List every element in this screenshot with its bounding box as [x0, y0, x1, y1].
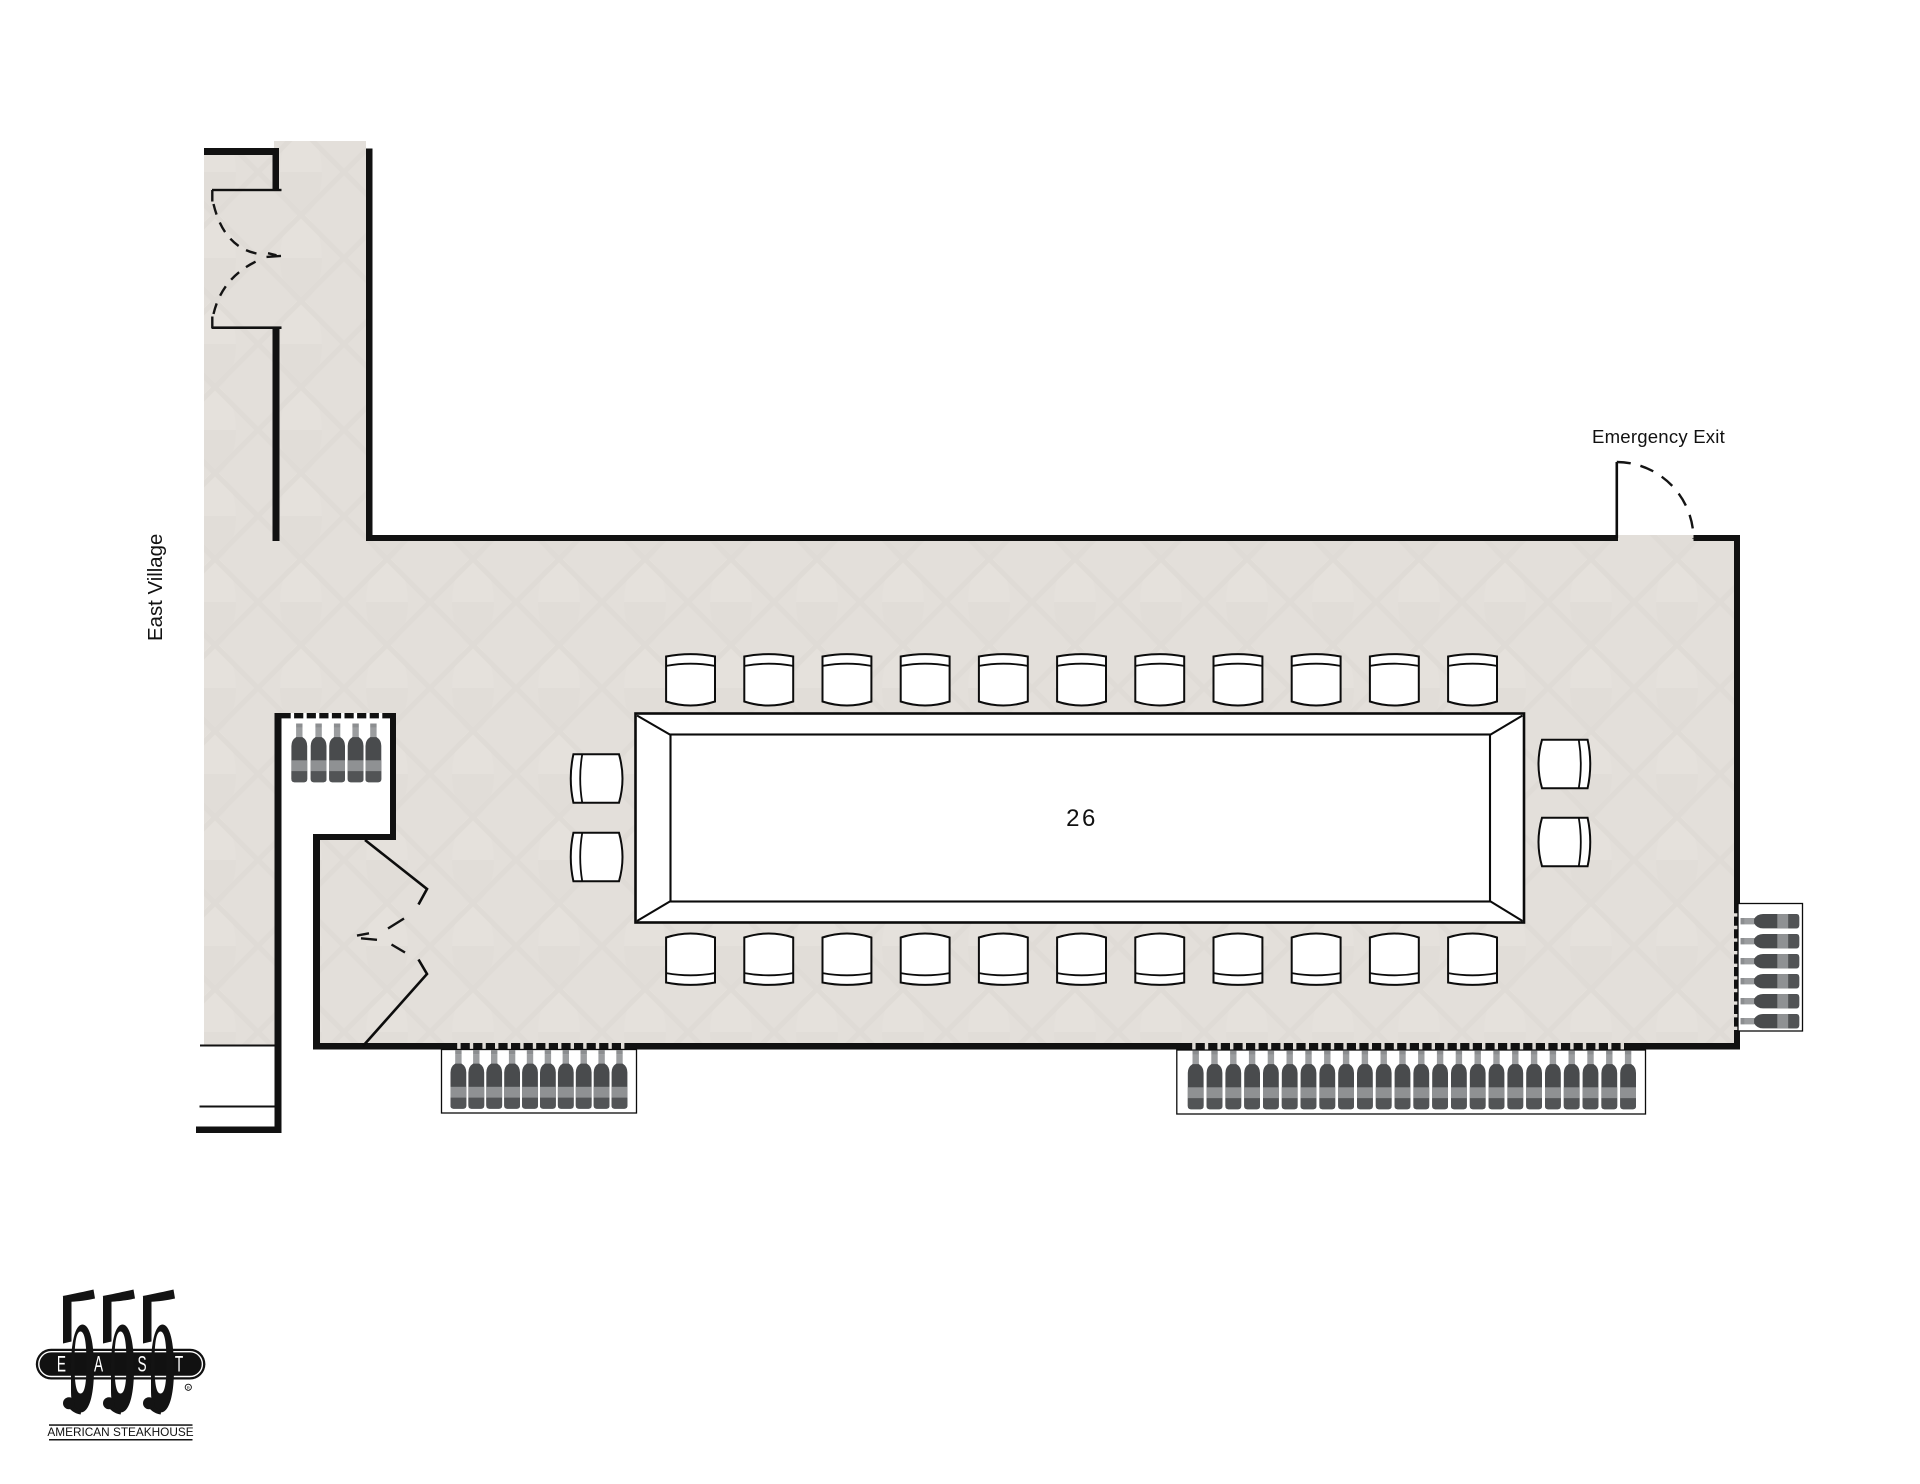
svg-text:S: S	[137, 1351, 146, 1376]
svg-text:A: A	[94, 1351, 104, 1376]
svg-text:Emergency Exit: Emergency Exit	[1592, 426, 1726, 447]
svg-text:T: T	[175, 1351, 183, 1376]
svg-text:E: E	[57, 1351, 66, 1376]
svg-text:East Village: East Village	[145, 534, 167, 641]
svg-text:26: 26	[1066, 805, 1098, 832]
svg-text:AMERICAN STEAKHOUSE: AMERICAN STEAKHOUSE	[47, 1425, 193, 1439]
